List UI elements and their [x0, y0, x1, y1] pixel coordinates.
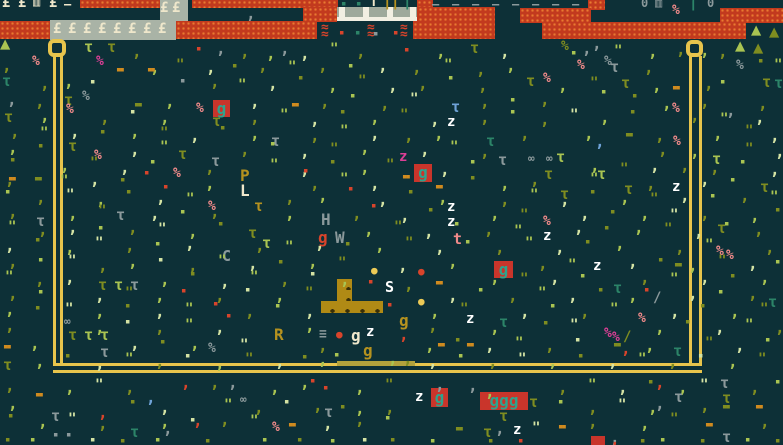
map-tile: /	[653, 291, 661, 305]
map-tile: ,	[318, 58, 328, 74]
map-tile: ,	[255, 238, 265, 254]
roof-band	[542, 22, 746, 39]
map-tile: "	[160, 126, 168, 140]
map-tile: ,	[130, 124, 140, 140]
map-tile: "	[664, 222, 672, 236]
map-tile: %	[32, 55, 40, 68]
map-tile: "	[520, 272, 528, 286]
map-tile: "	[530, 188, 538, 202]
map-tile: ,	[680, 158, 690, 174]
map-tile: ,	[588, 414, 598, 430]
map-tile: ▪	[262, 436, 267, 445]
map-tile: %	[543, 72, 551, 85]
map-tile: ,	[676, 42, 686, 58]
map-tile: ,	[40, 108, 50, 124]
map-tile: ▪	[640, 437, 645, 445]
map-tile: %	[638, 312, 646, 325]
map-tile: ,	[378, 58, 388, 74]
map-tile: %	[272, 421, 280, 434]
map-tile: ▪	[448, 74, 453, 83]
map-tile: ,	[506, 58, 516, 74]
map-tile: 0	[707, 0, 714, 9]
map-tile: τ	[451, 100, 460, 115]
map-tile: ,	[700, 172, 710, 188]
map-tile: "	[760, 302, 768, 316]
map-tile: ▪	[720, 78, 725, 87]
map-tile: ▪	[190, 416, 195, 425]
map-tile: ▪	[35, 304, 40, 313]
map-tile: ,	[440, 162, 450, 178]
map-tile: "	[620, 162, 628, 176]
map-tile: ▪	[310, 270, 315, 279]
map-tile: "	[160, 140, 168, 154]
map-tile: %	[577, 59, 585, 72]
map-tile: ▪	[38, 256, 43, 265]
map-tile: ▪▪	[722, 403, 729, 412]
map-tile: £	[143, 22, 151, 36]
map-tile: ▪	[125, 318, 130, 327]
map-tile: τ	[529, 395, 538, 410]
map-tile: ▪	[710, 192, 715, 201]
map-tile: ▪	[578, 352, 583, 361]
map-tile: ,	[690, 144, 700, 160]
map-tile: ▪	[334, 351, 339, 360]
map-tile: ,	[480, 144, 490, 160]
map-tile: ,	[628, 288, 638, 304]
map-tile: ▪	[393, 29, 398, 38]
map-tile: —	[64, 0, 71, 10]
map-tile: %	[673, 135, 681, 148]
map-tile: ▪	[190, 270, 195, 279]
map-tile: ,	[95, 356, 105, 372]
map-tile: ▪▪	[455, 425, 462, 434]
map-tile: ,	[560, 192, 570, 208]
map-tile: ,	[748, 286, 758, 302]
map-viewport[interactable]: ▲▲▲▲▲ggggggg££▥£—££▪▪ſ⌠⌠⌠————————0▥⌠0%,,…	[0, 0, 783, 445]
map-tile: ,	[205, 176, 215, 192]
map-tile: ,	[8, 254, 18, 270]
map-tile: "	[590, 172, 598, 186]
map-tile: ▪	[558, 398, 563, 407]
map-tile: τ	[68, 139, 77, 154]
map-tile: ▪	[130, 108, 135, 117]
map-tile: ,	[90, 172, 100, 188]
map-tile: ,	[300, 375, 310, 391]
map-tile: ▪	[510, 96, 515, 105]
map-tile: ,	[750, 380, 760, 396]
map-tile: τ	[51, 409, 60, 424]
map-tile: ▪▪	[291, 101, 298, 110]
map-tile: τ	[762, 75, 771, 90]
map-tile: ▪	[580, 272, 585, 281]
map-tile: ▪	[341, 0, 346, 9]
map-tile: ▪	[590, 188, 595, 197]
map-tile: "	[610, 302, 618, 316]
map-tile: ▪	[575, 336, 580, 345]
wagon-block	[321, 301, 383, 313]
map-tile: —	[492, 0, 499, 10]
map-tile: %	[736, 59, 744, 72]
map-tile: ,	[700, 270, 710, 286]
map-tile: "	[5, 270, 13, 284]
map-tile: "	[700, 378, 708, 392]
map-tile: "	[520, 208, 528, 222]
map-tile: ,	[5, 318, 15, 334]
map-tile: ,	[190, 128, 200, 144]
map-tile: ,	[360, 160, 370, 176]
map-tile: ,	[370, 126, 380, 142]
map-tile: ,	[240, 142, 250, 158]
map-tile: τ	[722, 430, 731, 445]
map-tile: ▪	[323, 384, 328, 393]
map-tile: "	[280, 108, 288, 122]
map-tile: "	[614, 44, 622, 58]
map-tile: ,	[308, 254, 318, 270]
map-tile: τ	[613, 281, 622, 296]
map-tile: ▪	[348, 62, 353, 71]
map-tile: ,	[530, 172, 540, 188]
map-tile: ,	[755, 110, 765, 126]
roof-band	[303, 7, 337, 22]
map-tile: ,	[688, 258, 698, 274]
map-tile: ▪	[745, 436, 750, 445]
map-tile: ,	[740, 188, 750, 204]
map-tile: ▪	[155, 240, 160, 249]
map-tile: ,	[210, 375, 220, 391]
map-tile: ●	[336, 329, 343, 340]
map-tile: ,	[268, 76, 278, 92]
map-tile: ▪▪	[755, 403, 762, 412]
map-tile: ,	[360, 140, 370, 156]
map-tile: ,	[300, 144, 310, 160]
map-tile: ,	[320, 94, 330, 110]
map-tile: H	[321, 212, 331, 228]
map-tile: ▪	[130, 398, 135, 407]
map-tile: ▪	[730, 176, 735, 185]
map-tile: ▪	[356, 0, 361, 9]
map-tile: ,	[655, 320, 665, 336]
map-tile: ,	[210, 74, 220, 90]
map-tile: ,	[228, 375, 238, 391]
map-tile: ,	[640, 270, 650, 286]
map-tile: ▪	[685, 318, 690, 327]
map-tile: ▪	[428, 206, 433, 215]
map-tile: ▪	[775, 258, 780, 267]
map-tile: ,	[428, 354, 438, 370]
map-tile: ,	[760, 414, 770, 430]
map-tile: ▪	[488, 437, 493, 445]
map-tile: ▪	[775, 206, 780, 215]
map-tile: £	[53, 22, 61, 36]
map-tile: "	[570, 108, 578, 122]
map-tile: ſ	[370, 0, 378, 9]
map-tile: ,	[340, 272, 350, 288]
map-tile: "	[90, 156, 98, 170]
map-tile: "	[176, 58, 184, 72]
map-tile: "	[570, 318, 578, 332]
map-tile: τ	[84, 328, 93, 343]
map-tile: "	[338, 256, 346, 270]
map-tile: £	[172, 1, 180, 15]
map-tile: ,	[146, 390, 156, 406]
map-tile: ,	[220, 412, 230, 428]
map-tile: "	[65, 302, 73, 316]
map-tile: "	[95, 378, 103, 392]
map-tile: ▪▪	[437, 341, 444, 350]
map-tile: %	[561, 40, 569, 53]
map-tile: 0	[641, 0, 648, 9]
map-tile: %	[82, 90, 90, 103]
map-tile: "	[238, 78, 246, 92]
map-tile: ▪	[8, 412, 13, 421]
map-tile: ,	[655, 396, 665, 412]
map-tile: ▪	[718, 288, 723, 297]
map-tile: "	[125, 286, 133, 300]
map-tile: "	[405, 236, 413, 250]
map-tile: ,	[404, 128, 414, 144]
map-tile: "	[525, 236, 533, 250]
map-tile: "	[125, 352, 133, 366]
map-tile: ,	[645, 338, 655, 354]
map-tile: ,	[495, 421, 505, 437]
map-tile: ▪▪	[402, 173, 409, 182]
map-tile: ,	[8, 396, 18, 412]
map-tile: "	[450, 140, 458, 154]
map-tile: ▪	[404, 46, 409, 55]
map-tile: ,	[775, 144, 783, 160]
map-tile: "	[288, 60, 296, 74]
map-tile: ▪	[339, 29, 344, 38]
map-tile: ≈	[321, 28, 329, 41]
map-tile: ▪	[340, 108, 345, 117]
map-tile: ,	[448, 288, 458, 304]
map-tile: τ	[470, 41, 479, 56]
map-tile: ●	[371, 265, 378, 276]
map-tile: ,	[163, 421, 173, 437]
map-tile: ,	[468, 378, 478, 394]
map-tile: ▪	[181, 287, 186, 296]
map-tile: ,	[375, 238, 385, 254]
map-tile: ▪▪	[625, 131, 632, 140]
map-tile: £	[158, 22, 166, 36]
map-tile: "	[745, 318, 753, 332]
map-tile: ▪	[196, 45, 201, 54]
map-tile: τ	[674, 390, 683, 405]
map-tile: τ	[544, 167, 553, 182]
map-tile: "	[618, 398, 626, 412]
map-tile: ▪	[550, 302, 555, 311]
map-tile: ▪	[724, 220, 729, 229]
map-tile: ≈	[400, 28, 408, 41]
map-tile: ,	[356, 44, 366, 60]
map-tile: ▪	[465, 238, 470, 247]
map-tile: "	[650, 192, 658, 206]
map-tile: τ	[774, 76, 783, 91]
map-tile: ,	[305, 318, 315, 334]
map-tile: £	[113, 22, 121, 36]
map-tile: "	[330, 42, 338, 56]
map-tile: ,	[580, 304, 590, 320]
map-tile: %	[672, 102, 680, 115]
map-tile: ,	[418, 76, 428, 92]
map-tile: z	[593, 259, 601, 273]
map-tile: z	[543, 229, 551, 243]
map-tile: "	[532, 421, 540, 435]
map-tile: ,	[655, 375, 665, 391]
map-tile: ,	[355, 412, 365, 428]
map-tile: %	[66, 103, 74, 116]
map-tile: ,	[64, 74, 74, 90]
map-tile: ,	[155, 320, 165, 336]
map-tile: ,	[130, 142, 140, 158]
map-tile: £	[128, 22, 136, 36]
map-tile: £	[2, 0, 10, 10]
map-tile: τ	[107, 40, 116, 55]
map-tile: ,	[65, 380, 75, 396]
map-tile: ▪	[65, 352, 70, 361]
map-tile: —	[432, 0, 439, 10]
map-tile: ,	[36, 190, 46, 206]
map-tile: ,	[715, 320, 725, 336]
map-tile: ▪	[362, 436, 367, 445]
map-tile: ,	[500, 192, 510, 208]
map-tile: —	[472, 0, 479, 10]
map-tile: ▪	[454, 220, 459, 229]
map-tile: "	[66, 188, 74, 202]
map-tile: ▪	[408, 188, 413, 197]
map-tile: ▪	[35, 236, 40, 245]
map-tile: ,	[246, 6, 256, 22]
map-tile: ▪	[455, 336, 460, 345]
map-tile: ▪	[698, 352, 703, 361]
map-tile: ,	[488, 354, 498, 370]
map-tile: τ	[3, 358, 12, 373]
map-tile: "	[95, 236, 103, 250]
map-tile: ,	[132, 44, 142, 60]
map-tile: ▪	[125, 302, 130, 311]
tree-icon: ▲	[753, 40, 763, 57]
map-tile: ▪	[345, 240, 350, 249]
map-tile: ▪	[775, 437, 780, 445]
map-tile: "	[60, 174, 68, 188]
map-tile: —	[552, 0, 559, 10]
map-tile: "	[515, 336, 523, 350]
map-tile: ,	[595, 134, 605, 150]
map-tile: ▪	[730, 272, 735, 281]
map-tile: ▪	[458, 352, 463, 361]
map-tile: ,	[318, 352, 328, 368]
map-tile: τ	[84, 40, 93, 55]
map-tile: "	[98, 204, 106, 218]
map-tile: "	[240, 338, 248, 352]
map-tile: ,	[700, 43, 710, 59]
map-tile: ,	[662, 96, 672, 112]
map-tile: ,	[480, 110, 490, 126]
map-tile: ▪	[180, 208, 185, 217]
map-tile: "	[40, 126, 48, 140]
map-tile: ∞	[240, 394, 247, 405]
map-tile: L	[240, 183, 250, 199]
map-tile: ▪	[218, 220, 223, 229]
map-tile: ,	[670, 304, 680, 320]
map-tile: ,	[490, 320, 500, 336]
map-tile: ,	[618, 380, 628, 396]
map-tile: £	[18, 0, 26, 10]
map-tile: ,	[7, 92, 17, 108]
roof-band	[176, 21, 317, 39]
map-tile: ,	[245, 304, 255, 320]
map-tile: "	[305, 286, 313, 300]
map-tile: ,	[558, 380, 568, 396]
map-tile: ▪	[213, 300, 218, 309]
map-tile: z	[513, 423, 521, 437]
map-tile: ▪▪	[147, 66, 154, 75]
map-tile: ▪	[470, 174, 475, 183]
tree-icon: ▲	[751, 22, 761, 39]
map-tile: ,	[355, 380, 365, 396]
map-tile: ●	[418, 296, 425, 307]
map-tile: τ	[178, 147, 187, 162]
map-tile: ,	[582, 41, 592, 57]
map-tile: ▪	[278, 258, 283, 267]
goblin-block: g	[414, 164, 432, 182]
map-tile: ,	[718, 44, 728, 60]
map-tile: %	[604, 327, 612, 340]
map-tile: "	[758, 352, 766, 366]
map-tile: ▪	[53, 431, 58, 440]
map-tile: ▥	[655, 0, 662, 9]
map-tile: ▪	[38, 142, 43, 151]
map-tile: ▪	[644, 286, 649, 295]
map-tile: ▪	[150, 158, 155, 167]
map-tile: "	[185, 302, 193, 316]
map-tile: ,	[65, 270, 75, 286]
map-tile: "	[68, 254, 76, 268]
map-tile: ▪	[700, 302, 705, 311]
map-tile: ,	[688, 286, 698, 302]
map-tile: ,	[323, 416, 333, 432]
map-tile: ,	[495, 240, 505, 256]
map-tile: ▥	[33, 0, 40, 8]
map-tile: ▪	[385, 414, 390, 423]
map-tile: ,	[435, 240, 445, 256]
map-tile: ,	[728, 354, 738, 370]
map-tile: t	[453, 232, 462, 247]
map-tile: "	[185, 318, 193, 332]
map-tile: ,	[190, 336, 200, 352]
map-tile: ,	[592, 36, 602, 52]
map-tile: ▪	[740, 158, 745, 167]
map-tile: ▪▪	[3, 343, 10, 352]
map-tile: ▪	[90, 436, 95, 445]
map-tile: ▪	[38, 288, 43, 297]
map-tile: ▪	[185, 352, 190, 361]
map-tile: ▪	[30, 436, 35, 445]
map-tile: ▪	[601, 88, 606, 97]
map-tile: ,	[40, 76, 50, 92]
map-tile: ⌠	[391, 0, 399, 9]
map-tile: "	[250, 270, 258, 284]
map-tile: ,	[5, 378, 15, 394]
map-tile: ▪	[120, 437, 125, 445]
map-tile: %	[196, 102, 204, 115]
map-tile: ▪	[155, 436, 160, 445]
map-tile: ▪▪	[672, 84, 679, 93]
map-tile: ▪	[355, 29, 360, 38]
map-tile: ▪	[205, 437, 210, 445]
map-tile: τ	[114, 278, 123, 293]
map-tile: ▪	[144, 169, 149, 178]
